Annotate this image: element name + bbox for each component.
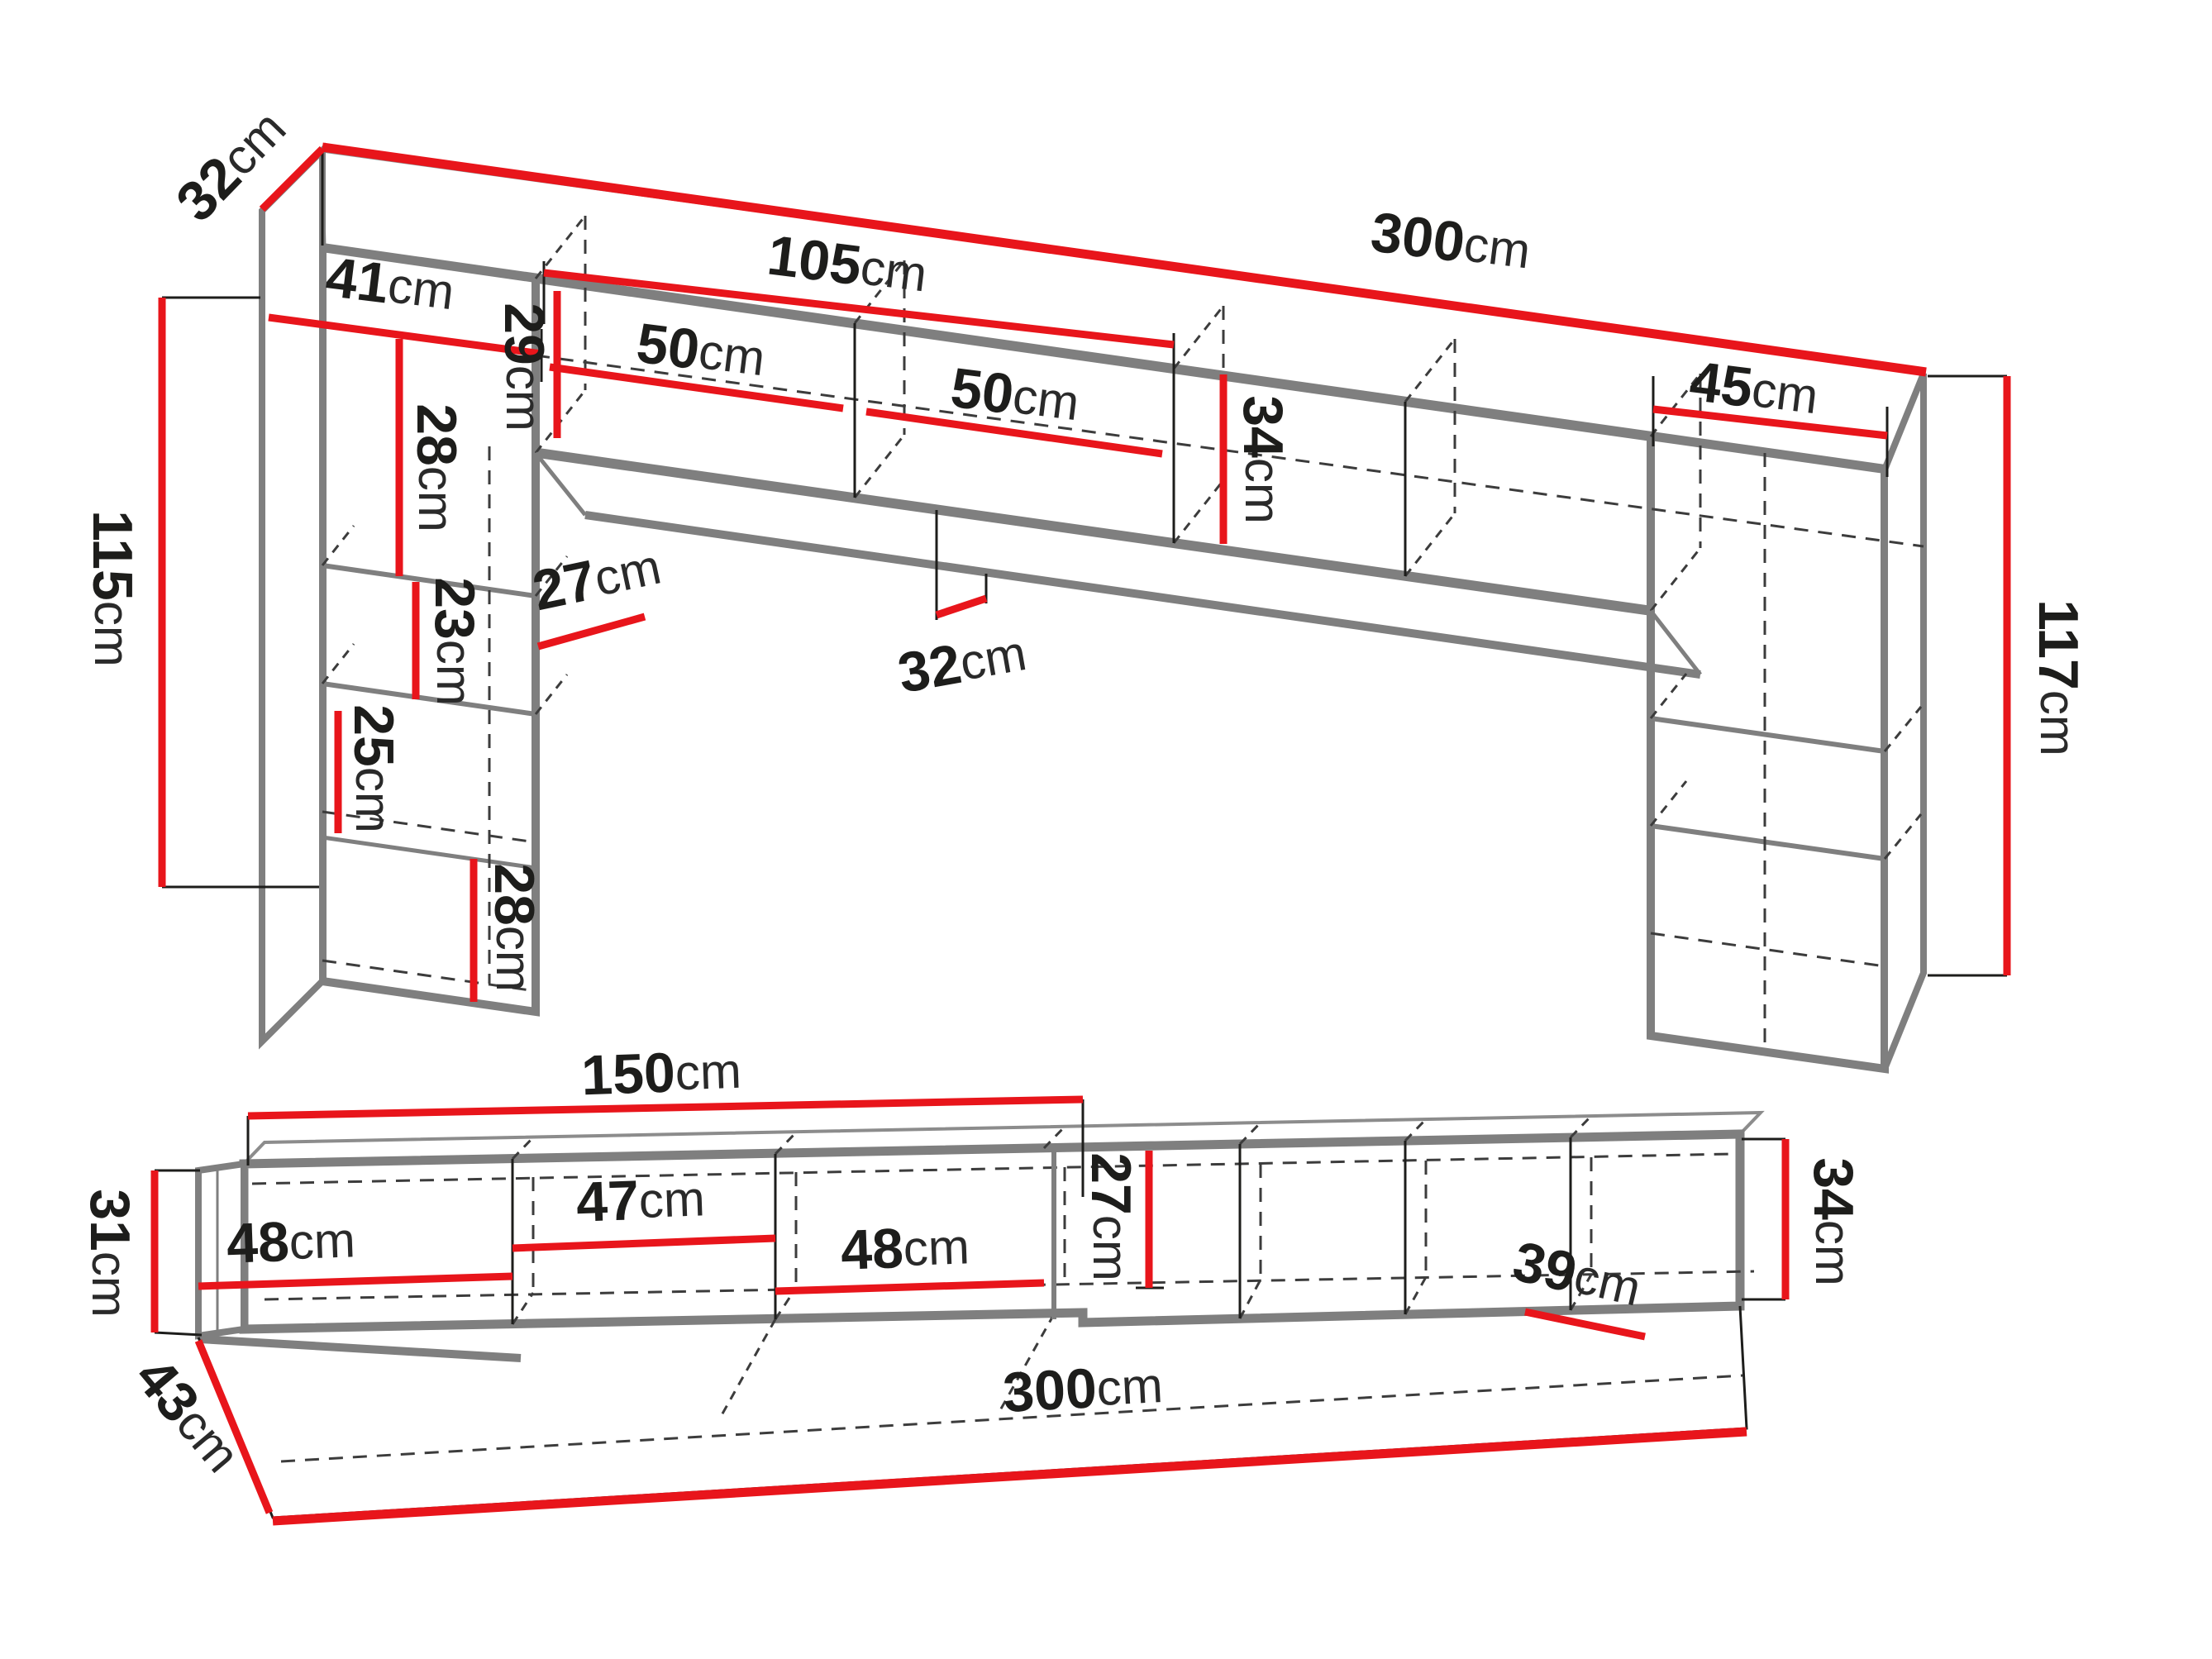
diagram-canvas: 32cm 300cm 105cm 41cm 28cm 50cm 29cm 50c… xyxy=(0,0,2212,1659)
dim-label-115: 115cm xyxy=(81,510,144,667)
right-column-front xyxy=(1651,436,1885,1069)
dim-label-34: 34cm xyxy=(1802,1157,1865,1286)
dim-label-48-second: 48cm xyxy=(840,1214,970,1281)
dim-label-300: 300cm xyxy=(1367,200,1533,282)
dim-label-150: 150cm xyxy=(580,1039,742,1108)
dim-label-31: 31cm xyxy=(79,1189,141,1318)
dim-line-27 xyxy=(538,617,645,646)
base-outline xyxy=(198,1306,1747,1518)
right-side-panel xyxy=(1885,374,1924,1069)
dim-label-25: 25cm xyxy=(342,704,405,833)
stand-front xyxy=(244,1134,1740,1329)
dim-label-28-upper: 28cm xyxy=(405,403,468,532)
dim-label-27: 27cm xyxy=(527,535,666,623)
dim-label-27: 27cm xyxy=(1080,1152,1142,1281)
dim-label-300: 300cm xyxy=(1001,1353,1164,1424)
dim-line-300 xyxy=(273,1432,1747,1521)
dim-label-48-first: 48cm xyxy=(226,1208,356,1275)
hidden-base-depth-edge xyxy=(722,1319,775,1415)
dim-label-117: 117cm xyxy=(2027,599,2090,756)
dim-label-28-lower: 28cm xyxy=(483,863,546,992)
dim-label-23: 23cm xyxy=(423,577,486,706)
hidden-depth-edge xyxy=(536,675,567,714)
dim-label-47: 47cm xyxy=(575,1166,706,1233)
stand-bottom-shadow xyxy=(200,1339,521,1358)
dim-label-34: 34cm xyxy=(1232,395,1294,524)
dim-label-32-bottom: 32cm xyxy=(894,621,1031,705)
wall-unit-drawing: 32cm 300cm 105cm 41cm 28cm 50cm 29cm 50c… xyxy=(81,98,2090,1069)
dim-line-32-bottom xyxy=(937,598,986,615)
extension-line xyxy=(155,1332,202,1335)
tv-stand-drawing: 150cm 31cm 48cm 47cm 48cm 27cm 39cm 34cm… xyxy=(79,1039,1865,1521)
dim-label-43: 43cm xyxy=(123,1346,254,1485)
left-side-panel xyxy=(262,150,322,1042)
furniture-dimension-diagram: 32cm 300cm 105cm 41cm 28cm 50cm 29cm 50c… xyxy=(0,0,2212,1659)
dim-line-39 xyxy=(1525,1312,1645,1337)
dim-label-29: 29cm xyxy=(493,303,555,431)
